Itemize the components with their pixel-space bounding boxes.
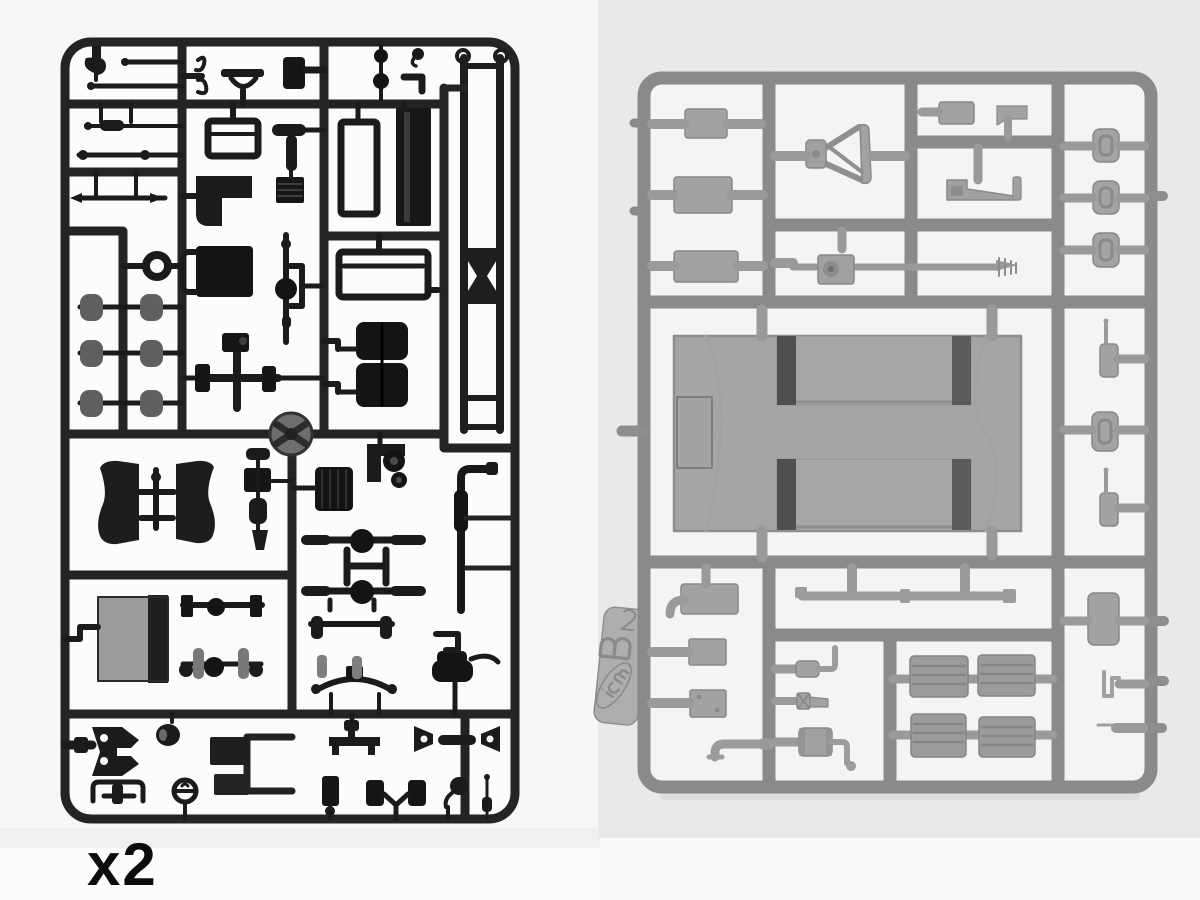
svg-text:x2: x2: [87, 831, 158, 898]
